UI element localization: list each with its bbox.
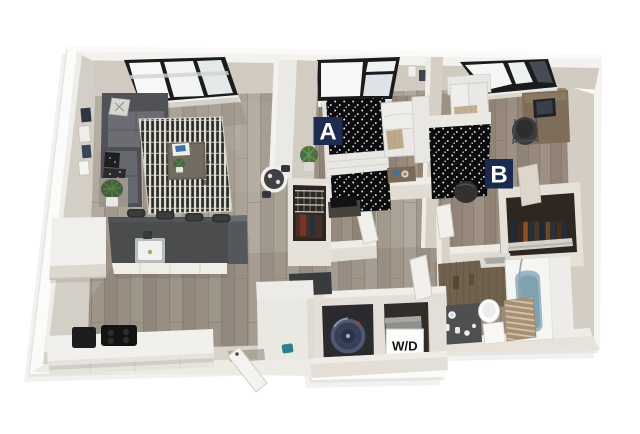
svg-text:W/D: W/D <box>392 339 418 354</box>
svg-text:A: A <box>319 119 336 146</box>
svg-text:B: B <box>490 162 507 189</box>
